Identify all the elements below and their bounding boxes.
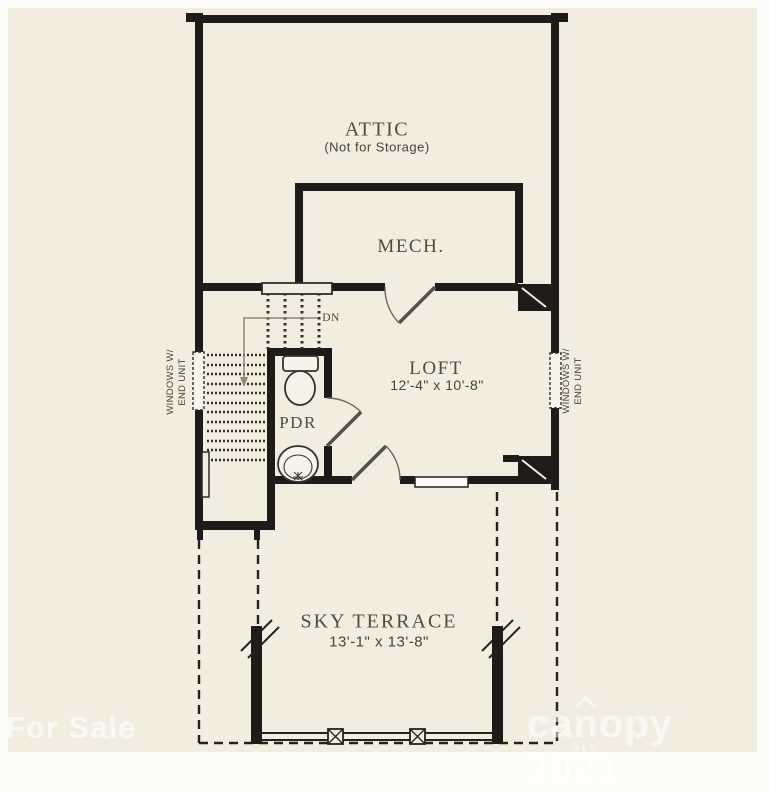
attic-label: ATTIC (345, 119, 409, 142)
terrace-door-leaf (352, 446, 386, 480)
chase-boxes (518, 284, 551, 483)
toilet-tank (283, 356, 318, 371)
mech-door-swing-arc (385, 287, 399, 323)
terrace-dimensions: 13'-1" x 13'-8" (329, 634, 429, 651)
mech-wall-right (515, 183, 523, 283)
dn-arrow (240, 377, 248, 387)
windows (193, 352, 561, 487)
stair-handrail-left (202, 452, 209, 497)
wall-stub-left (197, 530, 203, 540)
window-right-end-unit (550, 353, 561, 408)
stair-upper-run-dashed (268, 293, 319, 349)
stair-landing-wall-bottom (195, 521, 270, 530)
terrace-door-swing-arc (386, 446, 400, 480)
window-loft-south (415, 477, 468, 487)
stair-treads (207, 355, 266, 460)
window-note-right-line2: END UNIT (573, 348, 585, 413)
watermark-for-sale: For Sale (6, 710, 136, 746)
watermark-canopy-year: 2021 (527, 747, 620, 791)
pdr-wall-top (267, 348, 331, 356)
pdr-door-leaf (327, 412, 361, 446)
exterior-wall-top (195, 15, 559, 23)
stair-direction-label: DN (322, 312, 340, 324)
chase-wall-stub (503, 455, 519, 462)
mech-wall-top (295, 183, 523, 191)
window-note-right-line1: WINDOWS W/ (561, 348, 573, 413)
mech-wall-left (295, 183, 303, 290)
floorplan-drawing (0, 0, 769, 768)
loft-dimensions: 12'-4" x 10'-8" (390, 377, 484, 393)
exterior-wall-right-upper (551, 15, 559, 353)
mech-label: MECH. (377, 236, 444, 258)
window-note-right: WINDOWS W/ END UNIT (561, 348, 585, 413)
window-note-left-line1: WINDOWS W/ (165, 349, 177, 414)
loft-wall-bottom-mid (400, 476, 415, 484)
watermark-canopy-brand: canopy (527, 702, 673, 746)
mech-door-leaf (399, 287, 435, 323)
attic-loft-divider-wall-right (435, 283, 518, 291)
railing-x-panels (328, 729, 425, 744)
exterior-wall-left-upper (195, 15, 203, 352)
terrace-label: SKY TERRACE (300, 611, 457, 634)
window-note-left: WINDOWS W/ END UNIT (165, 349, 189, 414)
watermark-canopy: canopy 2021 (527, 702, 769, 792)
pdr-wall-left (267, 348, 275, 530)
wall-stub-right (254, 530, 260, 540)
pdr-door-swing-arc (327, 398, 361, 412)
toilet-bowl (285, 371, 315, 405)
window-left-end-unit (193, 352, 204, 410)
terrace-post-right (492, 626, 503, 744)
stair-handrail-top (262, 283, 332, 294)
pdr-label: PDR (279, 413, 317, 433)
pdr-wall-right-upper (324, 348, 332, 398)
terrace-railing (262, 733, 492, 740)
attic-note: (Not for Storage) (324, 140, 429, 155)
exterior-wall-right-lower (551, 408, 559, 490)
window-note-left-line2: END UNIT (177, 349, 189, 414)
watermark-mls: MLS (572, 743, 599, 753)
terrace-post-left (251, 626, 262, 744)
